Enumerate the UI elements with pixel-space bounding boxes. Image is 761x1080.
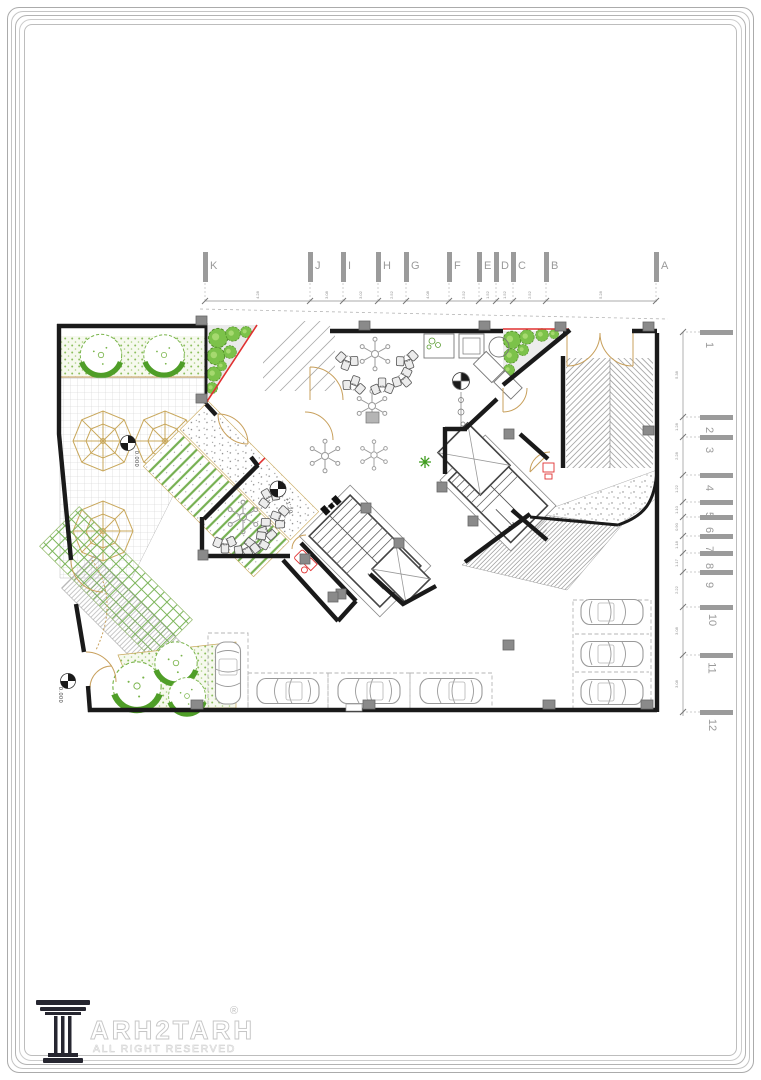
grid-column-bar [511, 252, 516, 282]
registered-mark: ® [230, 1005, 238, 1017]
grid-row-bar [700, 435, 733, 440]
grid-column-bar [494, 252, 499, 282]
grid-column-bar [544, 252, 549, 282]
dimension-value: 3.08 [675, 625, 679, 637]
grid-column-bar [341, 252, 346, 282]
elevation-marker: 0.000 [57, 687, 63, 703]
dimension-value: 1.52 [486, 290, 490, 300]
sofa-icon [340, 372, 369, 396]
dimension-value: 2.52 [528, 290, 532, 300]
grid-row-label: 3 [703, 447, 715, 453]
grid-row-bar [700, 473, 733, 478]
wc-fixture [545, 474, 552, 479]
dimension-value: 2.52 [462, 290, 466, 300]
car-icon [420, 679, 482, 704]
grid-column-bar [447, 252, 452, 282]
grid-column-bar [308, 252, 313, 282]
grid-row-label: 9 [703, 582, 715, 588]
grid-row-bar [700, 605, 733, 610]
grid-row-bar [700, 551, 733, 556]
round-table-icon [360, 337, 390, 371]
grid-column-label: A [661, 260, 668, 272]
dimension-value: 1.52 [503, 290, 507, 300]
reference-dashed-line [200, 309, 668, 319]
grid-row-label: 10 [706, 614, 718, 626]
grid-column-label: J [315, 260, 321, 272]
grid-column-bar [203, 252, 208, 282]
wc-fixture [543, 463, 554, 472]
dimension-value: 1.28 [675, 421, 679, 433]
grid-column-bar [376, 252, 381, 282]
tree-icon [113, 662, 161, 710]
grid-column-label: D [501, 260, 509, 272]
grid-row-bar [700, 515, 733, 520]
grid-row-label: 4 [703, 485, 715, 491]
grid-column-label: G [411, 260, 420, 272]
plant-icon [419, 456, 431, 468]
tree-icon [155, 642, 197, 684]
elevation-marker: 0.000 [133, 451, 139, 467]
car-icon [216, 642, 241, 704]
grid-row-bar [700, 330, 733, 335]
sofa-icon [332, 349, 361, 373]
sofa-icon [370, 378, 394, 395]
car-icon [581, 642, 643, 667]
grid-row-bar [700, 653, 733, 658]
grid-row-label: 6 [703, 527, 715, 533]
dimension-value: 2.52 [390, 290, 394, 300]
grid-column-label: K [210, 260, 217, 272]
floor-plan-drawing [0, 0, 761, 1080]
dimension-value: 1.18 [675, 539, 679, 551]
grid-column-label: B [551, 260, 558, 272]
grid-row-bar [700, 415, 733, 420]
dimension-value: 2.22 [675, 584, 679, 596]
dimension-value: 2.28 [675, 450, 679, 462]
tarh2tarh-logo: ARH2TARH ® ALL RIGHT RESERVED [34, 997, 294, 1067]
grid-column-label: I [348, 260, 351, 272]
brand-tagline: ALL RIGHT RESERVED [93, 1043, 236, 1055]
dimension-value: 4.28 [256, 290, 260, 300]
grid-row-label: 12 [706, 719, 718, 731]
grid-row-label: 8 [703, 563, 715, 569]
car-icon [257, 679, 319, 704]
section-marker [453, 373, 470, 390]
grid-row-label: 11 [706, 662, 718, 673]
car-icon [581, 680, 643, 705]
round-table-icon [361, 440, 388, 470]
grid-row-label: 1 [703, 342, 715, 348]
brand-text: ARH2TARH [90, 1015, 255, 1046]
grid-row-bar [700, 710, 733, 715]
grid-row-bar [700, 500, 733, 505]
grid-column-bar [404, 252, 409, 282]
dimension-value: 4.08 [426, 290, 430, 300]
grid-column-label: C [518, 260, 526, 272]
column-logo-icon [34, 997, 94, 1065]
dimension-value: 1.10 [675, 504, 679, 516]
round-table-icon [310, 439, 340, 473]
grid-row-bar [700, 570, 733, 575]
drawing-sheet: KJIHGFEDCBA 123456789101112 4.283.083.02… [0, 0, 761, 1080]
grid-row-label: 2 [703, 427, 715, 433]
dimension-value: 1.22 [675, 483, 679, 495]
dimension-value: 3.08 [675, 678, 679, 690]
grid-column-label: H [383, 260, 391, 272]
tree-icon [144, 335, 184, 375]
car-icon [581, 600, 643, 625]
dimension-value: 5.38 [675, 369, 679, 381]
dimension-value: 1.17 [675, 557, 679, 569]
dimension-value: 3.08 [325, 290, 329, 300]
dimension-value: 3.02 [359, 290, 363, 300]
dimension-value: 0.90 [675, 521, 679, 533]
parking-area [208, 600, 651, 711]
grid-column-bar [654, 252, 659, 282]
section-marker [270, 481, 286, 497]
grid-column-label: E [484, 260, 491, 272]
level-marker [121, 436, 136, 451]
grid-column-bar [477, 252, 482, 282]
grid-column-label: F [454, 260, 461, 272]
tree-icon [80, 334, 121, 375]
dimension-value: 5.28 [599, 290, 603, 300]
grid-row-bar [700, 534, 733, 539]
